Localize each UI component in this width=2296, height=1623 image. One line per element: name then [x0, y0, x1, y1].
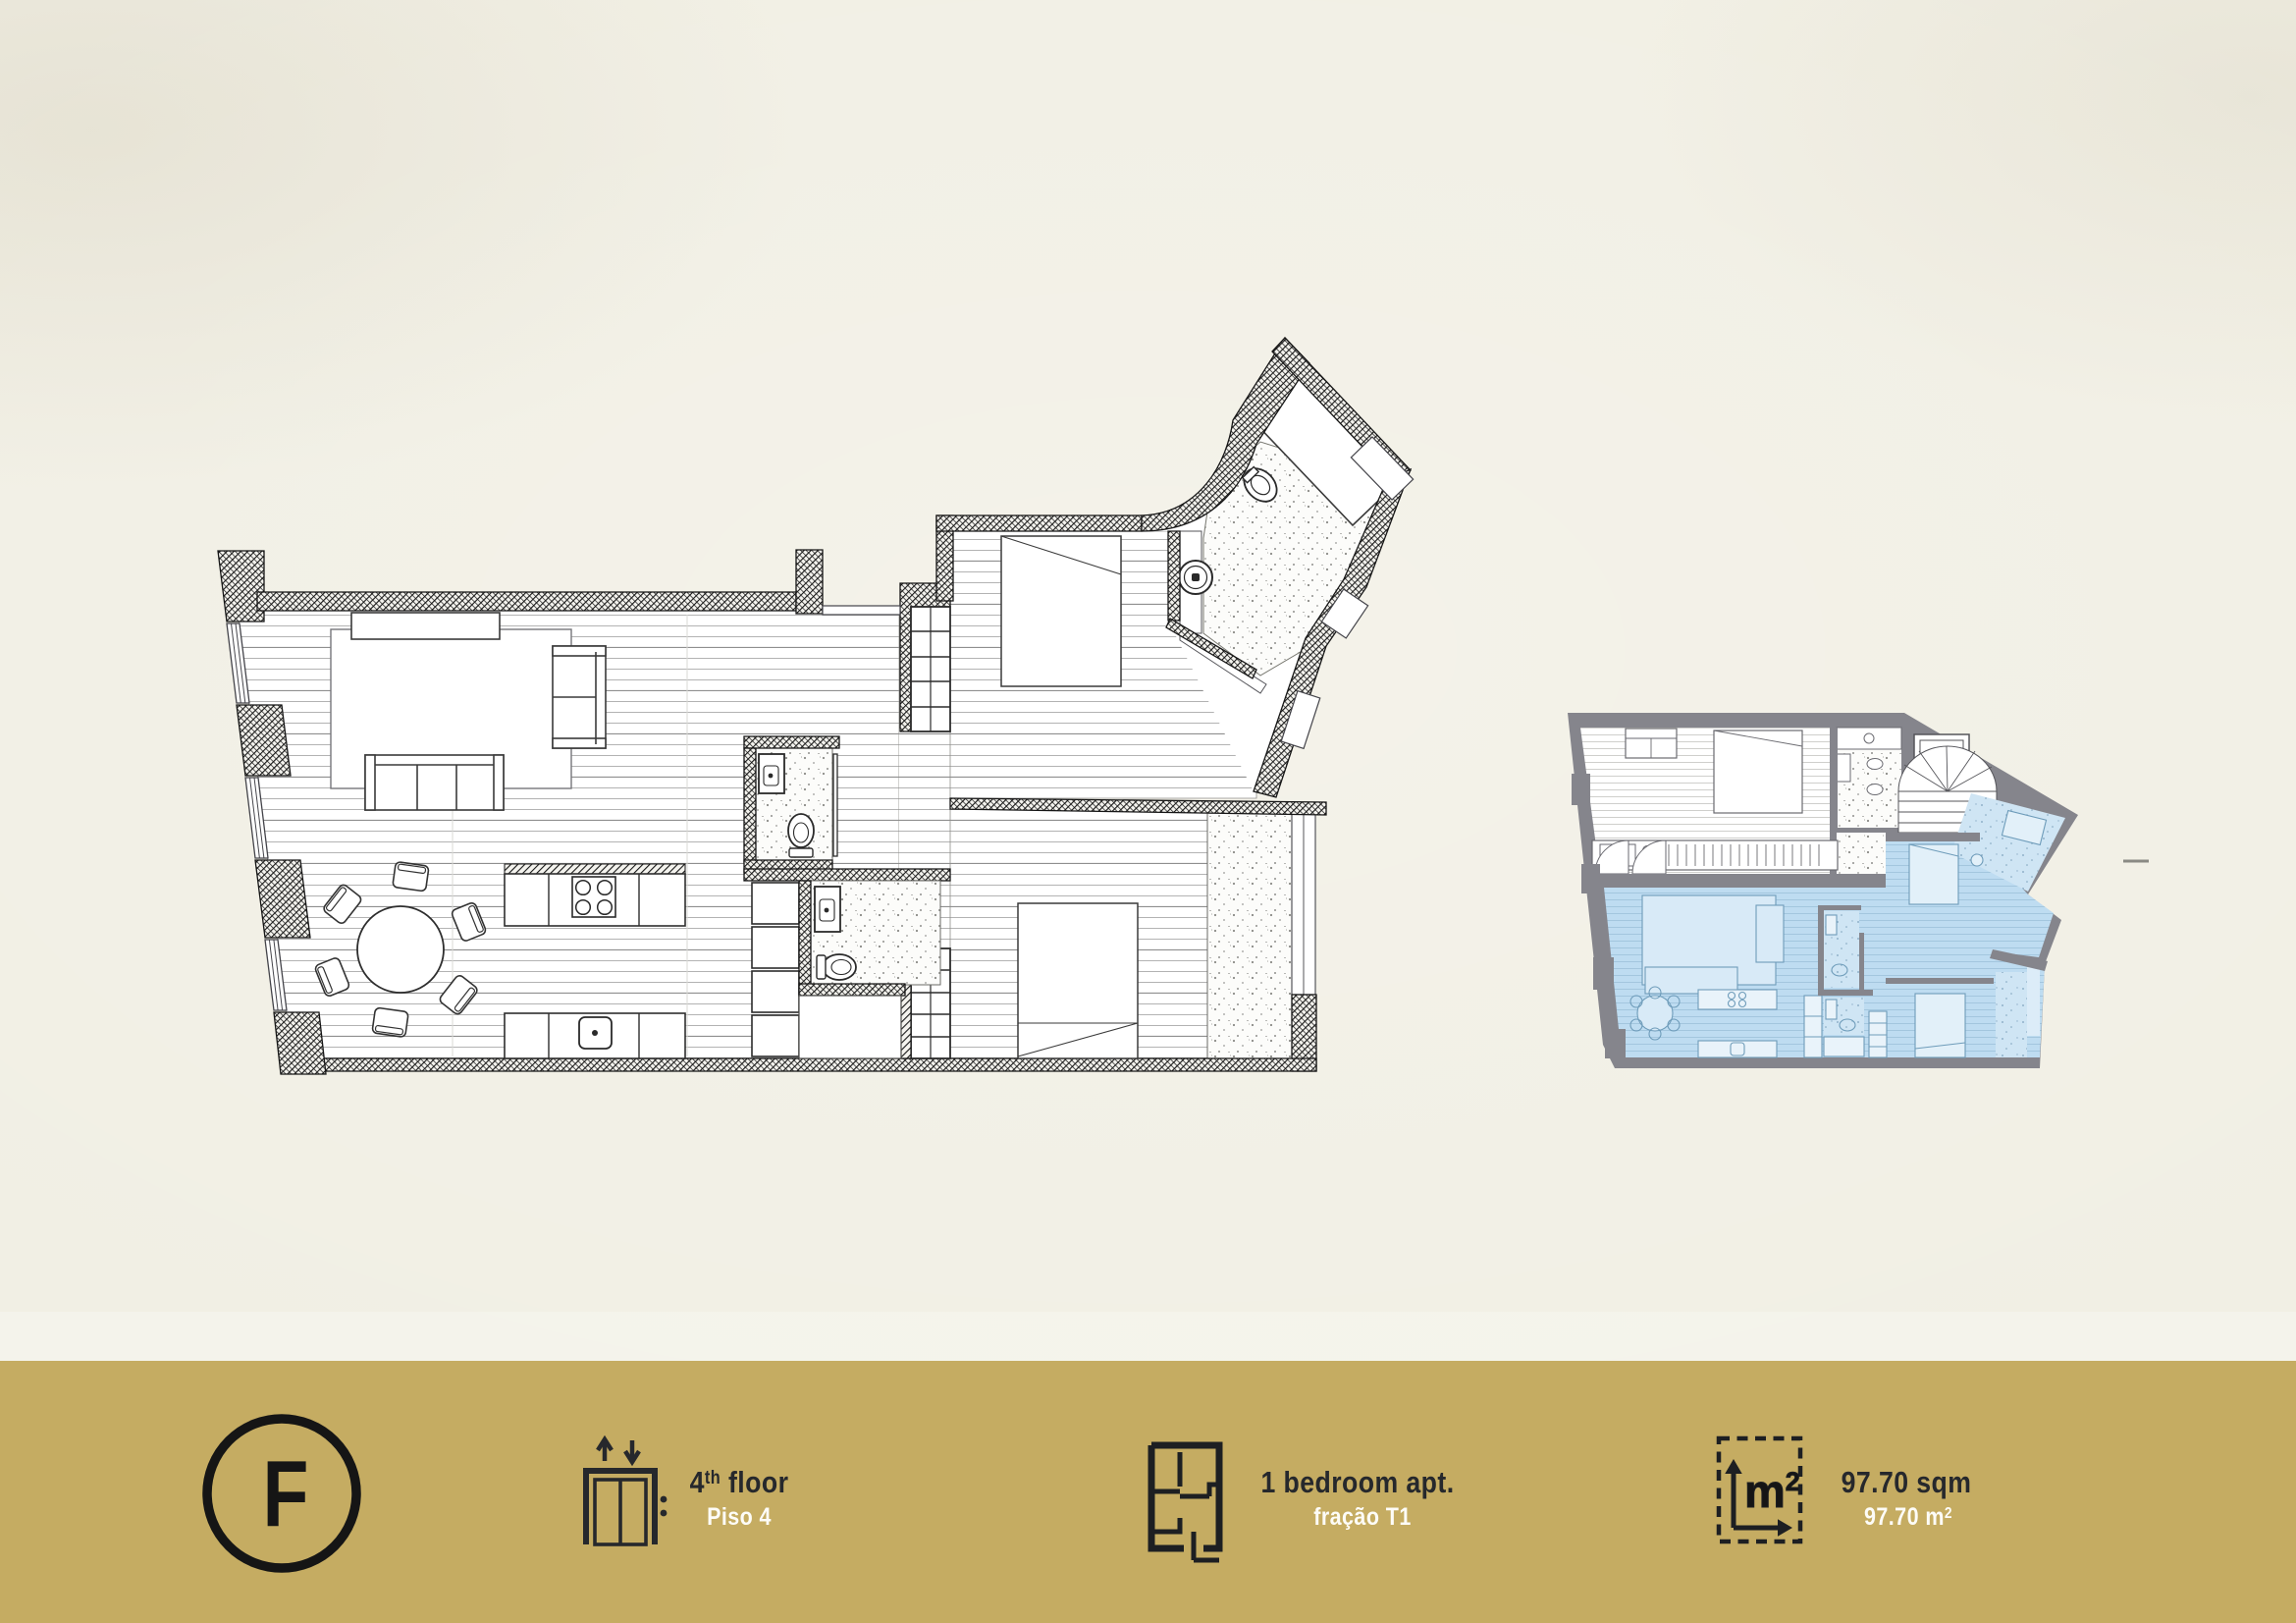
svg-text:Piso 4: Piso 4 — [707, 1502, 772, 1530]
svg-text:97.70 sqm: 97.70 sqm — [1842, 1466, 1972, 1499]
svg-text:F: F — [263, 1441, 309, 1546]
svg-text:4th floor: 4th floor — [690, 1466, 789, 1499]
svg-text:m2: m2 — [1744, 1465, 1800, 1517]
svg-text:97.70 m2: 97.70 m2 — [1864, 1502, 1952, 1530]
svg-text:fração T1: fração T1 — [1313, 1502, 1411, 1530]
svg-text:1 bedroom apt.: 1 bedroom apt. — [1260, 1466, 1454, 1499]
